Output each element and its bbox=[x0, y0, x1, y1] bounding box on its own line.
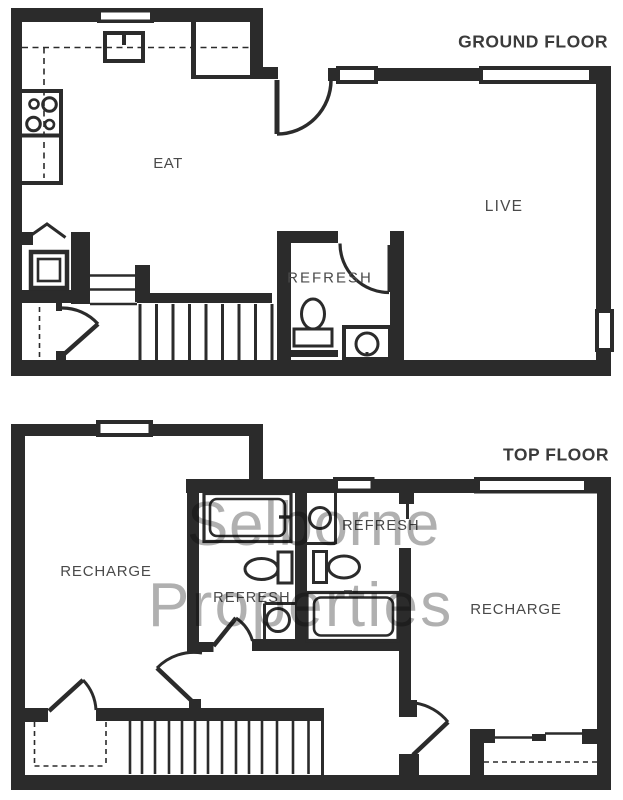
svg-text:Selborne: Selborne bbox=[187, 490, 440, 559]
svg-text:EAT: EAT bbox=[153, 155, 183, 172]
svg-text:REFRESH: REFRESH bbox=[287, 270, 373, 287]
svg-text:GROUND FLOOR: GROUND FLOOR bbox=[458, 32, 608, 52]
svg-text:TOP FLOOR: TOP FLOOR bbox=[503, 445, 609, 465]
svg-text:Properties: Properties bbox=[148, 571, 454, 640]
svg-text:LIVE: LIVE bbox=[485, 198, 523, 215]
svg-text:RECHARGE: RECHARGE bbox=[470, 601, 561, 618]
svg-text:RECHARGE: RECHARGE bbox=[60, 563, 151, 580]
